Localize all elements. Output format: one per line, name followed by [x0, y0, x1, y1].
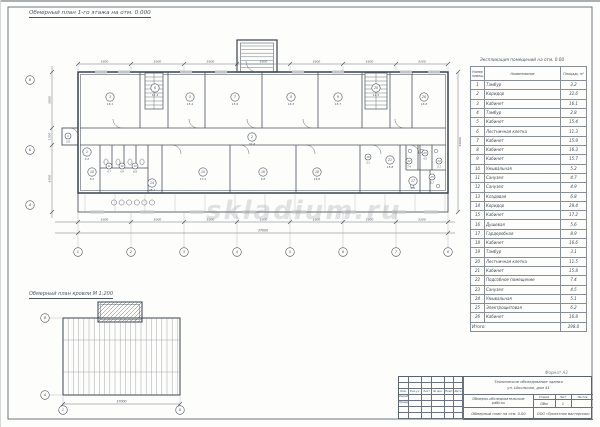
svg-text:14000: 14000 — [458, 137, 462, 147]
schedule-row: 13Кладовая6.8 — [471, 192, 587, 201]
title-block: Изм.Разраб.ПроверилКол.уч.Лист№ док.Подп… — [398, 376, 592, 419]
svg-text:5300: 5300 — [101, 60, 109, 64]
doc-type-cell: Обмерно-обследовательские работы — [463, 395, 533, 408]
svg-text:5600: 5600 — [47, 96, 51, 104]
svg-text:1: 1 — [62, 408, 64, 412]
svg-text:5200: 5200 — [418, 60, 426, 64]
svg-text:16: 16 — [261, 170, 265, 174]
schedule-row: 6Лестничная клетка11.3 — [471, 127, 587, 136]
schedule-row: 14Коридор28.4 — [471, 201, 587, 210]
svg-text:11.5: 11.5 — [373, 93, 379, 97]
schedule-row: 3Кабинет16.1 — [471, 99, 587, 108]
col-number: Номер помещ. — [471, 67, 485, 81]
title-block-column: Подп. — [445, 377, 454, 418]
svg-text:3: 3 — [183, 250, 185, 254]
schedule-row: 7Кабинет15.9 — [471, 136, 587, 145]
svg-text:23: 23 — [423, 151, 427, 155]
svg-text:5.6: 5.6 — [261, 177, 266, 181]
svg-text:5: 5 — [289, 250, 291, 254]
schedule-total-row: Итого: 298.0 — [471, 322, 587, 331]
schedule-row: 10Умывальная5.2 — [471, 164, 587, 173]
svg-text:4.5: 4.5 — [423, 158, 427, 161]
svg-text:37000: 37000 — [258, 229, 268, 233]
schedule-row: 26Кабинет16.8 — [471, 313, 587, 322]
svg-text:16.8: 16.8 — [421, 102, 427, 106]
schedule-row: 1Тамбур3.2 — [471, 81, 587, 90]
svg-text:22: 22 — [407, 159, 411, 163]
roof-plan — [63, 302, 180, 395]
schedule-header: Номер помещ. Наименование Площадь, м² — [471, 67, 587, 81]
svg-text:5.2: 5.2 — [90, 177, 95, 181]
svg-text:3.2: 3.2 — [85, 157, 90, 161]
tb-empty-cell — [399, 413, 408, 419]
schedule-row: 8Кабинет16.3 — [471, 146, 587, 155]
svg-text:2: 2 — [130, 250, 132, 254]
svg-text:5300: 5300 — [313, 60, 321, 64]
svg-text:37000: 37000 — [116, 399, 126, 403]
svg-text:1700: 1700 — [47, 133, 51, 141]
svg-text:4.7: 4.7 — [107, 171, 111, 174]
tb-empty-cell — [445, 413, 453, 419]
svg-text:5200: 5200 — [418, 218, 426, 222]
col-area: Площадь, м² — [561, 67, 587, 81]
svg-text:5300: 5300 — [154, 218, 162, 222]
title-block-column: Кол.уч. — [409, 377, 422, 418]
svg-text:16.1: 16.1 — [107, 102, 113, 106]
svg-text:6.2: 6.2 — [430, 182, 434, 185]
svg-text:2.8: 2.8 — [66, 141, 70, 144]
sheet-name-cell: Обмерный план на отм. 0.00 — [463, 408, 533, 420]
svg-text:15.4: 15.4 — [187, 102, 193, 106]
svg-text:11: 11 — [107, 164, 111, 168]
watermark: skladium.ru — [206, 196, 402, 226]
schedule-row: 16Душевая5.6 — [471, 220, 587, 229]
tb-empty-cell — [454, 413, 462, 419]
sheet-number: 1 — [556, 400, 572, 408]
svg-text:6: 6 — [154, 86, 156, 90]
schedule-row: 2Коридор32.6 — [471, 90, 587, 99]
svg-text:17.2: 17.2 — [200, 177, 206, 181]
total-value: 298.0 — [561, 322, 587, 331]
drawing-sheet: 13.2232.6316.142.8515.4611.3715.9816.391… — [0, 0, 600, 427]
svg-text:28.4: 28.4 — [149, 188, 155, 192]
svg-text:13: 13 — [133, 164, 137, 168]
sheet-col: Лист — [556, 395, 572, 400]
org-name-cell: ООО «Проектная мастерская» — [533, 408, 593, 420]
schedule-row: 5Кабинет15.4 — [471, 118, 587, 127]
main-plan-title: Обмерный план 1-го этажа на отм. 0.000 — [29, 10, 151, 18]
svg-text:14: 14 — [150, 181, 154, 185]
svg-text:15.9: 15.9 — [232, 102, 238, 106]
svg-text:3.1: 3.1 — [366, 162, 370, 165]
schedule-row: 23Санузел4.5 — [471, 285, 587, 294]
svg-text:5300: 5300 — [366, 60, 374, 64]
svg-text:7.4: 7.4 — [407, 166, 411, 169]
total-label: Итого: — [471, 322, 561, 331]
schedule-row: 9Кабинет15.7 — [471, 155, 587, 164]
schedule-body: 1Тамбур3.22Коридор32.63Кабинет16.14Тамбу… — [471, 81, 587, 323]
col-name: Наименование — [485, 67, 561, 81]
schedule-row: 19Тамбур3.1 — [471, 248, 587, 257]
tb-empty-cell — [432, 413, 444, 419]
svg-text:6700: 6700 — [47, 175, 51, 183]
project-line2: ул. Школьная, дом 41 — [507, 386, 550, 392]
stage-values: Обм 1 — [533, 400, 593, 408]
room-schedule-table: Номер помещ. Наименование Площадь, м² 1Т… — [470, 66, 587, 332]
tb-empty-cell — [409, 413, 421, 419]
schedule-row: 22Подсобное помещение7.4 — [471, 276, 587, 285]
svg-text:8: 8 — [290, 95, 292, 99]
schedule-row: 4Тамбур2.8 — [471, 108, 587, 117]
svg-text:5300: 5300 — [260, 60, 268, 64]
svg-text:20: 20 — [374, 86, 378, 90]
svg-text:7: 7 — [234, 95, 236, 99]
schedule-row: 20Лестничная клетка11.5 — [471, 257, 587, 266]
svg-text:4.9: 4.9 — [120, 171, 124, 174]
title-block-column: № док. — [432, 377, 445, 418]
title-block-column: Лист — [422, 377, 432, 418]
svg-text:3: 3 — [109, 95, 111, 99]
roof-plan-title: Обмерный план кровли М 1:200 — [29, 291, 113, 299]
svg-text:17: 17 — [411, 179, 415, 183]
schedule-row: 25Электрощитовая6.2 — [471, 304, 587, 313]
svg-text:4: 4 — [236, 250, 238, 254]
title-block-column: Дата — [454, 377, 463, 418]
svg-text:19: 19 — [366, 155, 370, 159]
dimension-lines — [52, 64, 458, 404]
svg-text:12: 12 — [120, 164, 124, 168]
sheets-col: Листов — [572, 395, 594, 400]
axes-and-dims: 1234567853005300530053005300530053005300… — [26, 60, 462, 257]
svg-text:2: 2 — [251, 135, 253, 139]
svg-text:25: 25 — [430, 175, 434, 179]
svg-text:16.6: 16.6 — [314, 177, 320, 181]
svg-text:1: 1 — [77, 250, 79, 254]
svg-text:5.1: 5.1 — [437, 166, 441, 169]
svg-text:26: 26 — [422, 95, 426, 99]
format-note: Формат А3 — [545, 370, 568, 375]
schedule-row: 24Умывальная5.1 — [471, 294, 587, 303]
svg-text:5300: 5300 — [101, 218, 109, 222]
title-block-column: Изм.Разраб.Проверил — [399, 377, 409, 418]
svg-text:15: 15 — [201, 170, 205, 174]
stage-value: Обм — [534, 400, 556, 408]
svg-text:5: 5 — [189, 95, 191, 99]
stage-col: Стадия — [534, 395, 556, 400]
schedule-row: 11Санузел4.7 — [471, 173, 587, 182]
svg-text:5300: 5300 — [154, 60, 162, 64]
svg-text:10: 10 — [90, 170, 94, 174]
svg-text:6: 6 — [342, 250, 344, 254]
svg-text:32.6: 32.6 — [249, 142, 255, 146]
svg-text:5300: 5300 — [207, 60, 215, 64]
schedule-row: 18Кабинет16.6 — [471, 239, 587, 248]
svg-text:11.3: 11.3 — [152, 93, 158, 97]
svg-text:24: 24 — [437, 159, 441, 163]
svg-text:16.3: 16.3 — [288, 102, 294, 106]
svg-text:15.8: 15.8 — [387, 165, 393, 169]
svg-text:15.7: 15.7 — [335, 102, 341, 106]
svg-text:18: 18 — [315, 170, 319, 174]
roof-plan-extra: 37000ВА18 — [41, 314, 185, 415]
svg-text:1: 1 — [86, 150, 88, 154]
schedule-row: 17Гардеробная8.9 — [471, 229, 587, 238]
svg-text:6.8: 6.8 — [133, 171, 137, 174]
svg-text:21: 21 — [388, 158, 392, 162]
tb-empty-cell — [422, 413, 431, 419]
svg-text:8.9: 8.9 — [411, 186, 416, 190]
schedule-row: 15Кабинет17.2 — [471, 211, 587, 220]
schedule-title: Экспликация помещений на отм. 0.00 — [456, 57, 588, 62]
title-block-grid: Изм.Разраб.ПроверилКол.уч.Лист№ док.Подп… — [399, 377, 463, 418]
svg-text:9: 9 — [337, 95, 339, 99]
schedule-row: 12Санузел4.9 — [471, 183, 587, 192]
misc-lines — [85, 46, 445, 214]
project-name-cell: Техническое обследование здания ул. Школ… — [463, 377, 593, 395]
schedule-row: 21Кабинет15.8 — [471, 266, 587, 275]
